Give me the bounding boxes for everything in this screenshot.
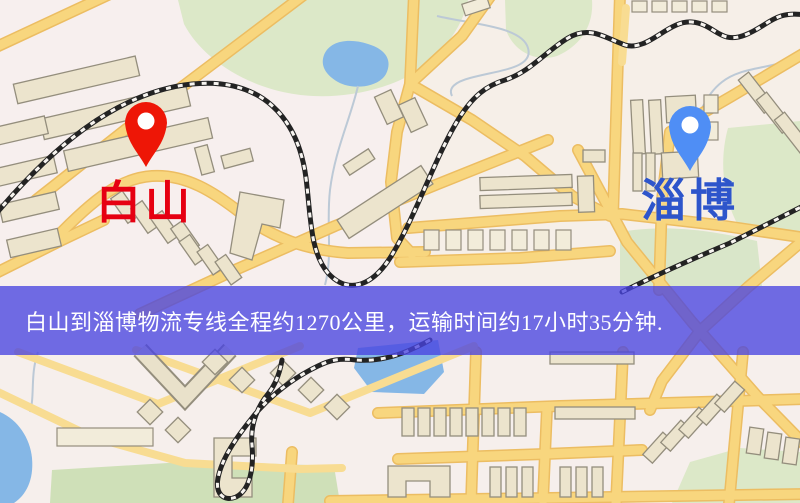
- map-graphics: [0, 0, 800, 503]
- origin-city-label: 白山: [96, 181, 194, 226]
- route-summary-text: 白山到淄博物流专线全程约1270公里，运输时间约17小时35分钟.: [0, 305, 663, 337]
- destination-city-label: 淄博: [641, 179, 739, 224]
- info-banner: 白山到淄博物流专线全程约1270公里，运输时间约17小时35分钟.: [0, 286, 800, 355]
- map-canvas: 白山 淄博 白山到淄博物流专线全程约1270公里，运输时间约17小时35分钟.: [0, 0, 800, 503]
